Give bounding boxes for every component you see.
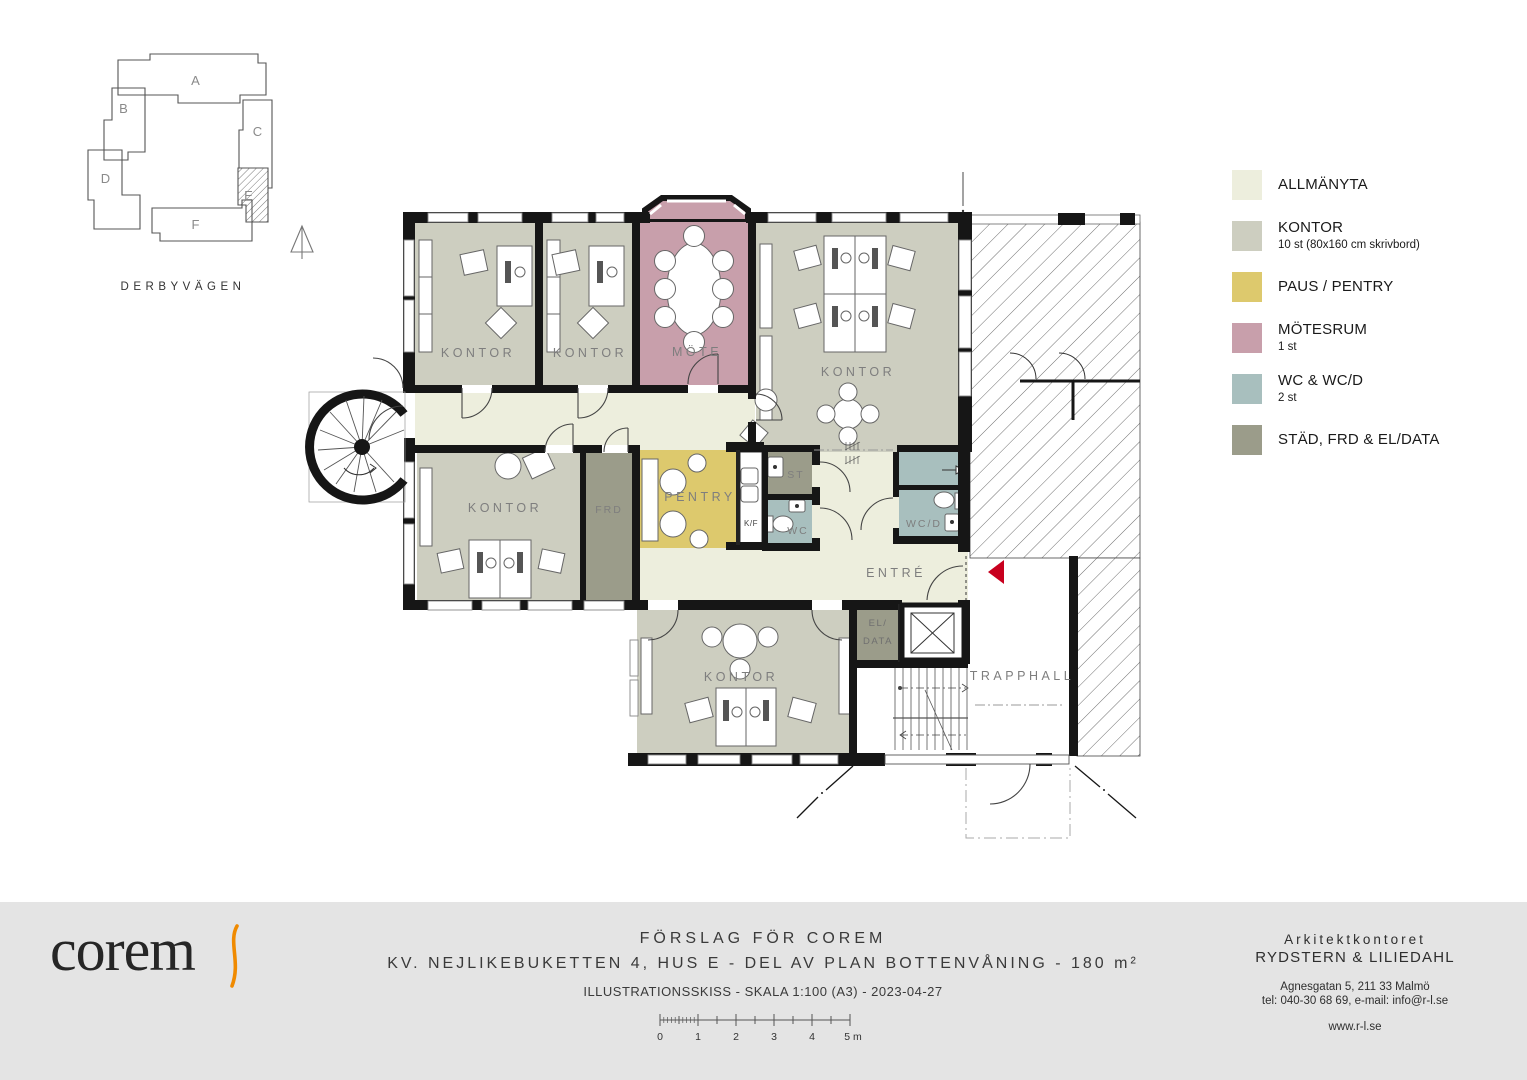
legend-label: KONTOR xyxy=(1278,220,1420,236)
drawing-subtitle: KV. NEJLIKEBUKETTEN 4, HUS E - DEL AV PL… xyxy=(313,955,1213,973)
label-kontor-5: KONTOR xyxy=(704,670,778,684)
legend-swatch-wc xyxy=(1232,374,1262,404)
north-arrow xyxy=(291,226,313,259)
page: A B C D E F DERBYVÄGEN xyxy=(0,0,1527,1080)
corem-logo-swoosh-icon xyxy=(224,924,244,988)
street-label: DERBYVÄGEN xyxy=(121,281,246,293)
site-building-label-f: F xyxy=(192,217,201,232)
legend: ALLMÄNYTA KONTOR 10 st (80x160 cm skrivb… xyxy=(1232,170,1512,476)
legend-label: MÖTESRUM xyxy=(1278,322,1367,338)
legend-row-stad: STÄD, FRD & EL/DATA xyxy=(1232,425,1512,455)
scale-tick-5: 5 m xyxy=(844,1031,862,1043)
legend-sublabel: 2 st xyxy=(1278,391,1363,405)
room-eldata xyxy=(857,607,900,662)
legend-sublabel: 10 st (80x160 cm skrivbord) xyxy=(1278,238,1420,252)
footer-title-block: FÖRSLAG FÖR COREM KV. NEJLIKEBUKETTEN 4,… xyxy=(313,930,1213,999)
label-kontor-2: KONTOR xyxy=(553,346,627,360)
scale-tick-3: 3 xyxy=(771,1031,777,1043)
site-building-label-c: C xyxy=(253,124,263,139)
legend-swatch-stad xyxy=(1232,425,1262,455)
legend-swatch-allmanyta xyxy=(1232,170,1262,200)
architect-contact: tel: 040-30 68 69, e-mail: info@r-l.se xyxy=(1235,995,1475,1007)
corem-logo: corem xyxy=(50,916,195,985)
legend-label: STÄD, FRD & EL/DATA xyxy=(1278,432,1440,448)
site-building-d xyxy=(88,150,140,229)
scale-bar: 0 1 2 3 4 5 m xyxy=(655,1010,875,1050)
architect-address: Agnesgatan 5, 211 33 Malmö xyxy=(1235,981,1475,993)
label-kontor-1: KONTOR xyxy=(441,346,515,360)
footer: corem FÖRSLAG FÖR COREM KV. NEJLIKEBUKET… xyxy=(0,902,1527,1080)
legend-sublabel: 1 st xyxy=(1278,340,1367,354)
legend-swatch-paus-pentry xyxy=(1232,272,1262,302)
architect-block: Arkitektkontoret RYDSTERN & LILIEDAHL Ag… xyxy=(1235,932,1475,1033)
legend-swatch-motesrum xyxy=(1232,323,1262,353)
site-building-f xyxy=(152,200,252,241)
site-building-b xyxy=(104,88,145,160)
label-wcd: WC/D xyxy=(906,518,942,530)
architect-website: www.r-l.se xyxy=(1235,1021,1475,1033)
label-kf: K/F xyxy=(744,519,758,528)
label-kontor-3: KONTOR xyxy=(821,365,895,379)
label-eldata-1: EL/ xyxy=(869,618,888,629)
elevator xyxy=(902,605,964,660)
label-pentry: PENTRY xyxy=(664,490,735,504)
legend-label: WC & WC/D xyxy=(1278,373,1363,389)
legend-row-paus-pentry: PAUS / PENTRY xyxy=(1232,272,1512,302)
architect-name: RYDSTERN & LILIEDAHL xyxy=(1235,949,1475,966)
label-eldata-2: DATA xyxy=(863,636,893,647)
drawing-note: ILLUSTRATIONSSKISS - SKALA 1:100 (A3) - … xyxy=(313,984,1213,999)
scale-tick-2: 2 xyxy=(733,1031,739,1043)
stairs xyxy=(893,668,968,750)
label-frd: FRD xyxy=(595,504,623,516)
legend-swatch-kontor xyxy=(1232,221,1262,251)
site-building-label-e: E xyxy=(244,188,254,203)
legend-row-kontor: KONTOR 10 st (80x160 cm skrivbord) xyxy=(1232,221,1512,251)
scale-tick-0: 0 xyxy=(657,1031,663,1043)
drawing-title: FÖRSLAG FÖR COREM xyxy=(313,930,1213,948)
label-entre: ENTRÉ xyxy=(866,565,926,580)
legend-label: PAUS / PENTRY xyxy=(1278,279,1393,295)
legend-label: ALLMÄNYTA xyxy=(1278,177,1368,193)
site-building-label-d: D xyxy=(101,171,111,186)
legend-row-motesrum: MÖTESRUM 1 st xyxy=(1232,323,1512,353)
label-st: ST xyxy=(787,469,804,481)
room-frd xyxy=(586,452,632,602)
label-mote: MÖTE xyxy=(672,345,722,359)
label-trapphall: TRAPPHALL xyxy=(970,669,1074,683)
site-building-label-a: A xyxy=(191,73,201,88)
label-kontor-4: KONTOR xyxy=(468,501,542,515)
legend-row-allmanyta: ALLMÄNYTA xyxy=(1232,170,1512,200)
architect-office-type: Arkitektkontoret xyxy=(1235,932,1475,947)
scale-tick-4: 4 xyxy=(809,1031,815,1043)
site-building-label-b: B xyxy=(119,101,129,116)
room-corridor xyxy=(415,385,755,452)
scale-tick-1: 1 xyxy=(695,1031,701,1043)
legend-row-wc: WC & WC/D 2 st xyxy=(1232,374,1512,404)
label-wc: WC xyxy=(787,525,809,537)
entry-arrow xyxy=(988,560,1004,584)
